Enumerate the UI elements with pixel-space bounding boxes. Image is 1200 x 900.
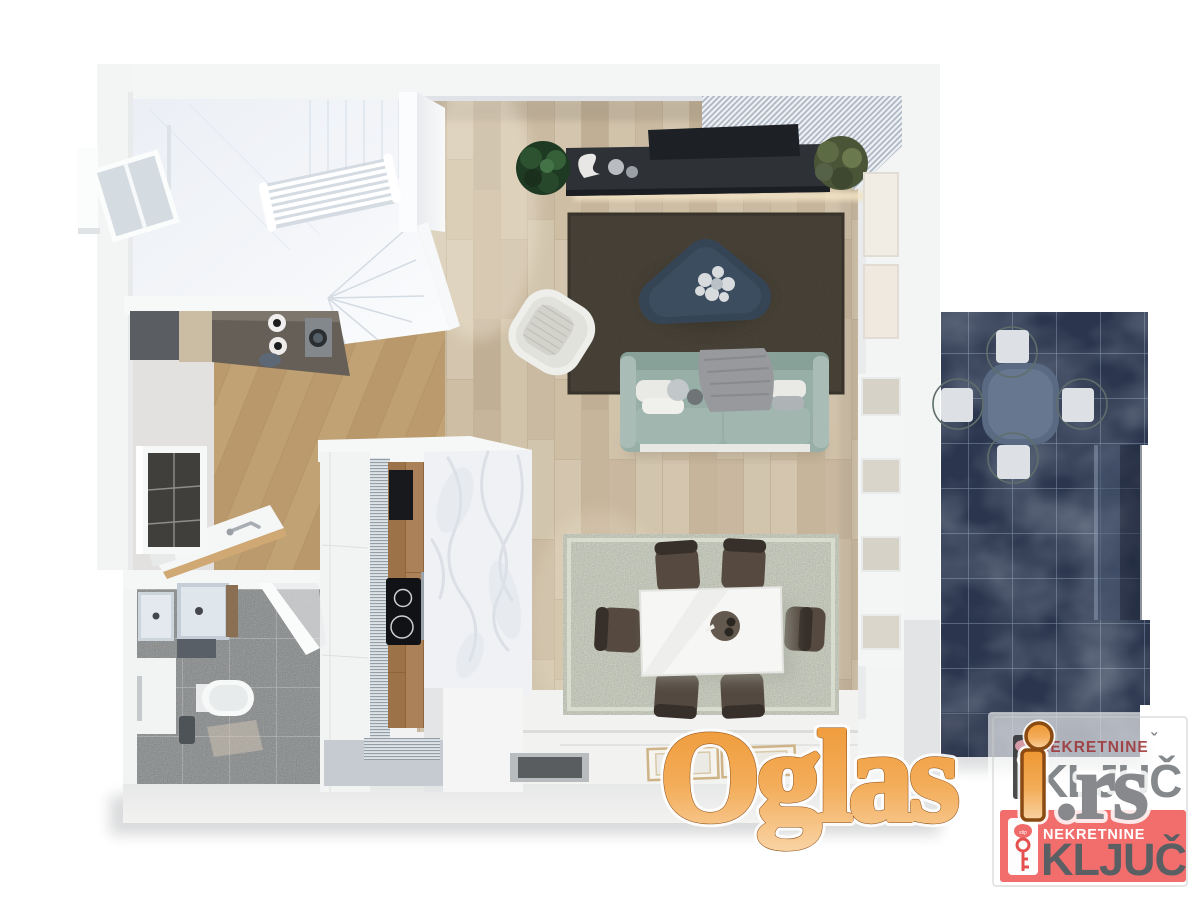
svg-text:.rs: .rs	[1055, 736, 1147, 838]
svg-text:Oglas: Oglas	[660, 705, 957, 849]
svg-text:stip: stip	[1019, 830, 1027, 836]
svg-text:ˇ: ˇ	[1151, 730, 1158, 750]
svg-text:KLJUČ: KLJUČ	[1041, 834, 1187, 885]
